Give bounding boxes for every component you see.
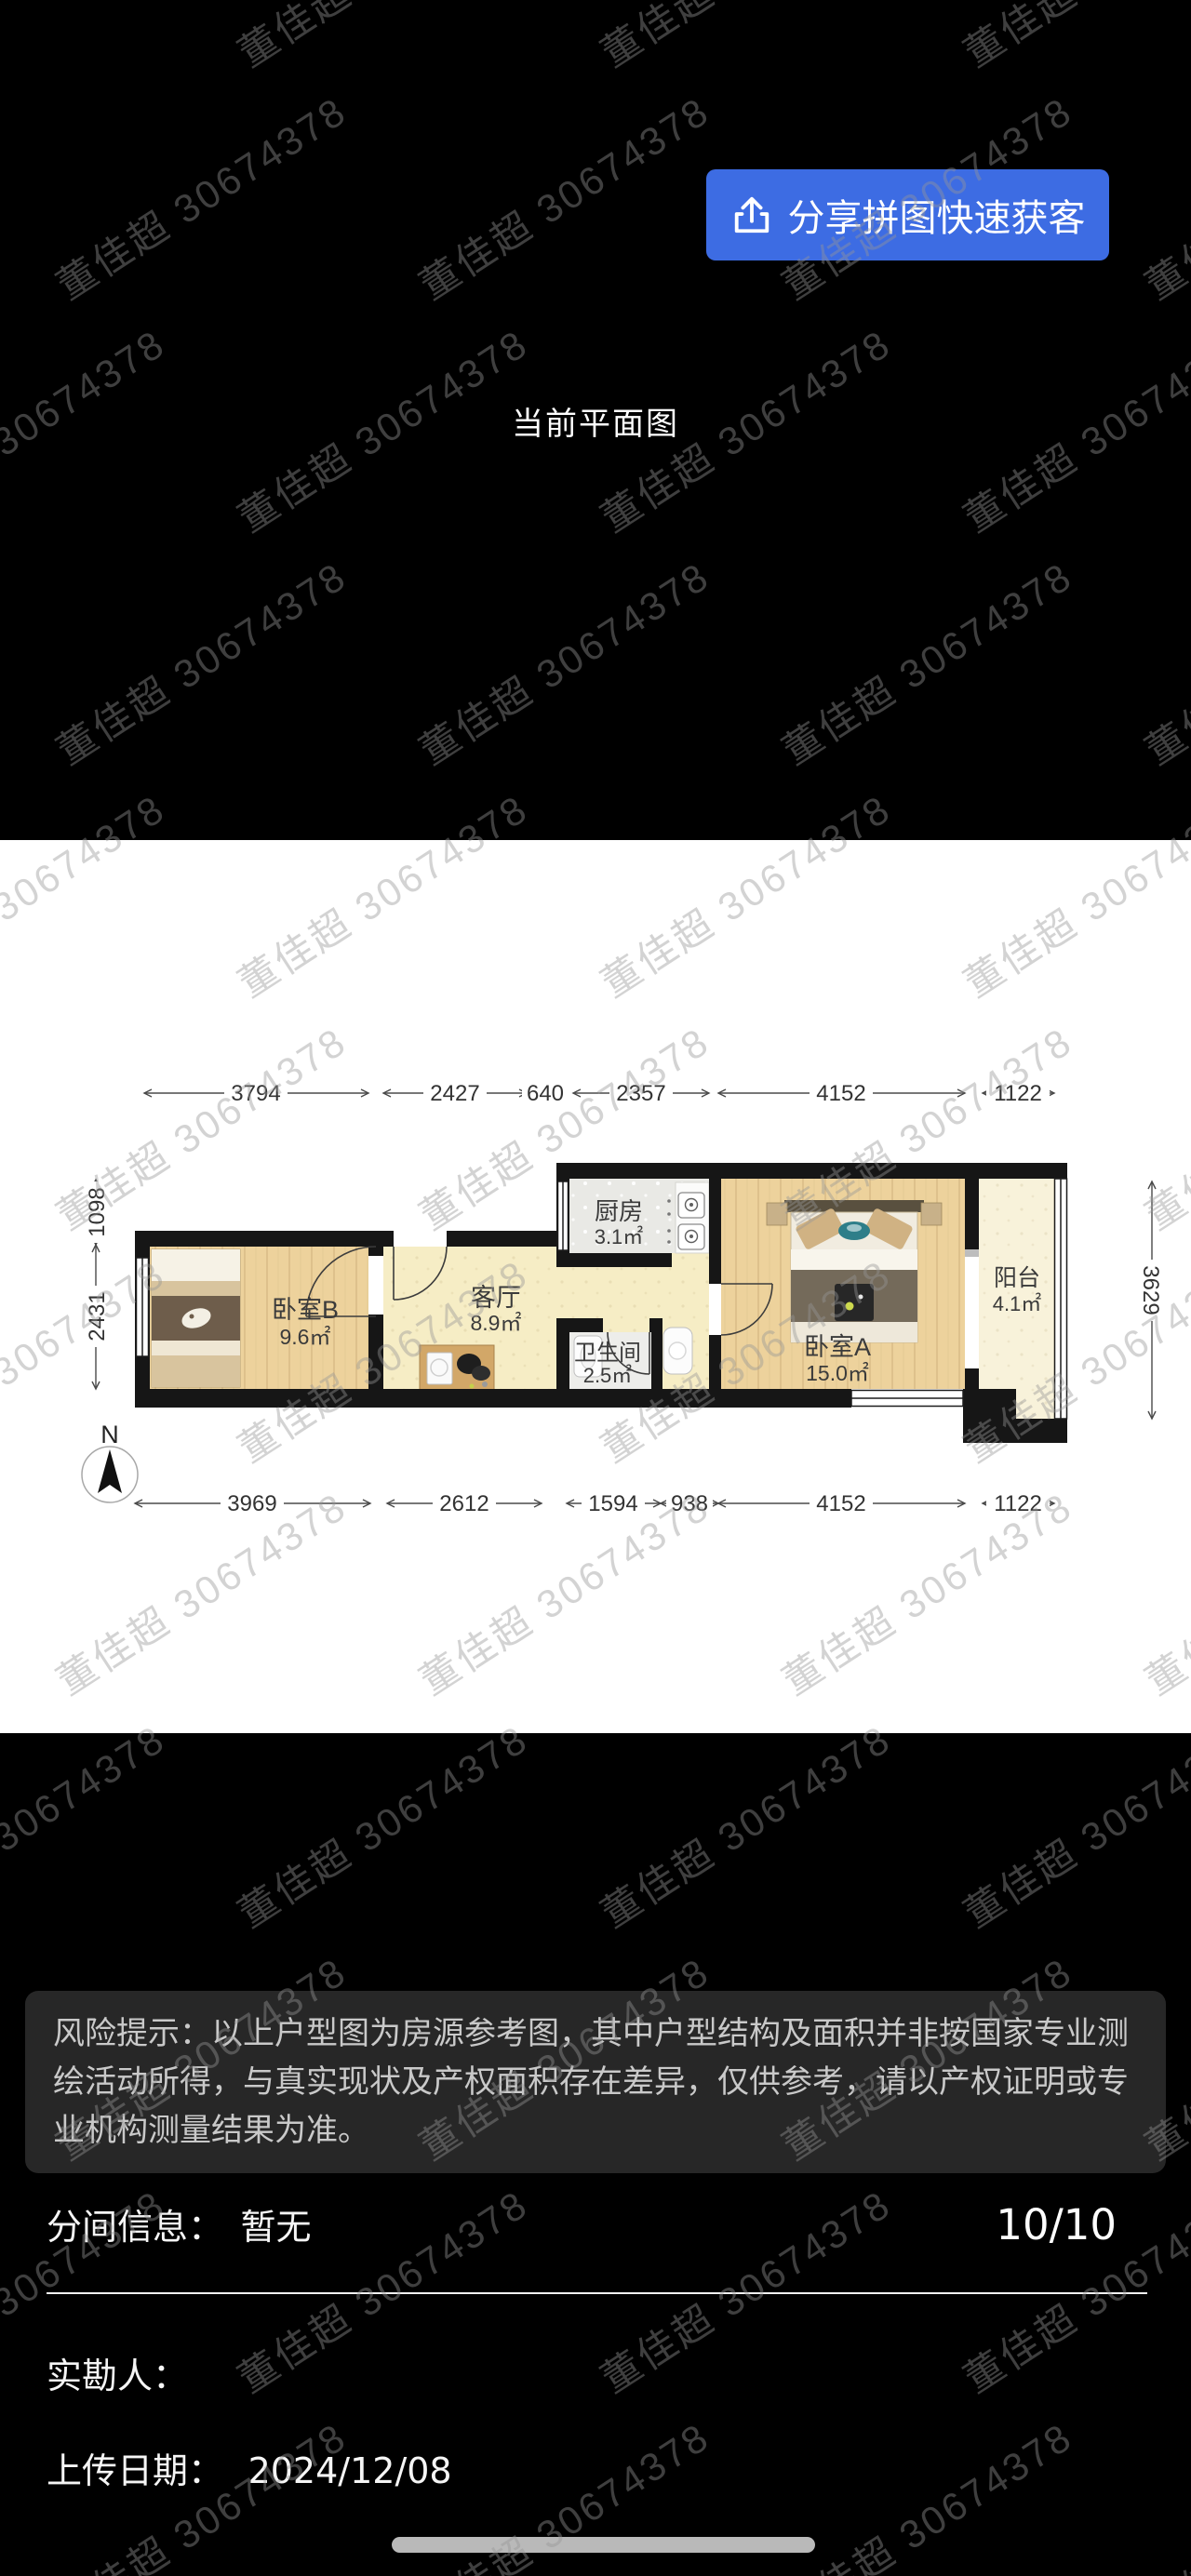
dim-bottom-3: 1594 — [588, 1491, 637, 1516]
partition-info-value: 暂无 — [240, 2209, 311, 2248]
bed-bedroom-b — [152, 1249, 240, 1387]
room-name-bathroom: 卫生间 — [574, 1341, 641, 1366]
bed-bedroom-a — [767, 1200, 942, 1342]
upload-date-label: 上传日期： — [47, 2452, 223, 2491]
tv-cabinet — [420, 1345, 494, 1395]
surveyor-row: 实勘人： — [47, 2347, 188, 2398]
share-button[interactable]: 分享拼图快速获客 — [706, 169, 1109, 260]
room-area-living: 8.9㎡ — [471, 1311, 522, 1335]
room-area-bedroom-b: 9.6㎡ — [280, 1325, 331, 1349]
dim-bottom-5: 4152 — [816, 1491, 865, 1516]
dim-bottom-2: 2612 — [439, 1491, 488, 1516]
north-indicator: N — [82, 1421, 138, 1502]
dim-top-2: 2427 — [430, 1081, 479, 1106]
partition-info: 分间信息： 暂无 — [47, 2198, 311, 2249]
dim-top-1: 3794 — [231, 1081, 280, 1106]
risk-notice-text: 风险提示：以上户型图为房源参考图，其中户型结构及面积并非按国家专业测绘活动所得，… — [53, 2016, 1129, 2148]
page-title: 当前平面图 — [0, 398, 1191, 444]
dim-top-5: 4152 — [816, 1081, 865, 1106]
room-area-bathroom: 2.5㎡ — [583, 1364, 633, 1387]
dim-top-4: 2357 — [616, 1081, 665, 1106]
dim-right-1: 3629 — [1138, 1265, 1163, 1315]
home-indicator-bar[interactable] — [392, 2537, 815, 2553]
share-icon — [730, 194, 773, 236]
partition-info-label: 分间信息： — [47, 2209, 223, 2248]
dim-left-1: 1098 — [85, 1187, 110, 1236]
floorplan-svg: 3794 2427 640 2357 4152 1122 3969 2612 1… — [0, 840, 1191, 1733]
dim-bottom-4: 938 — [671, 1491, 708, 1516]
wall-cap — [965, 1249, 979, 1257]
room-area-balcony: 4.1㎡ — [993, 1292, 1042, 1315]
dim-bottom-1: 3969 — [227, 1491, 276, 1516]
dim-top-3: 640 — [527, 1081, 564, 1106]
upload-date-row: 上传日期： 2024/12/08 — [47, 2442, 452, 2493]
info-section: 风险提示：以上户型图为房源参考图，其中户型结构及面积并非按国家专业测绘活动所得，… — [0, 1733, 1191, 2576]
room-name-bedroom-a: 卧室A — [804, 1333, 871, 1361]
room-area-kitchen: 3.1㎡ — [595, 1225, 644, 1248]
divider — [47, 2292, 1147, 2294]
surveyor-label: 实勘人： — [47, 2357, 188, 2396]
room-name-balcony: 阳台 — [994, 1265, 1040, 1291]
top-section: 分享拼图快速获客 当前平面图 — [0, 0, 1191, 840]
room-name-kitchen: 厨房 — [595, 1197, 643, 1225]
room-name-bedroom-b: 卧室B — [272, 1296, 339, 1324]
north-label: N — [100, 1421, 119, 1448]
floorplan-image[interactable]: 3794 2427 640 2357 4152 1122 3969 2612 1… — [0, 840, 1191, 1733]
upload-date-value: 2024/12/08 — [248, 2450, 452, 2491]
dim-top-6: 1122 — [994, 1081, 1042, 1106]
room-area-bedroom-a: 15.0㎡ — [806, 1361, 869, 1385]
page-indicator: 10/10 — [996, 2200, 1117, 2249]
partition-info-row: 分间信息： 暂无 10/10 — [47, 2198, 1117, 2249]
room-name-living: 客厅 — [471, 1284, 521, 1312]
dim-bottom-6: 1122 — [994, 1491, 1042, 1516]
dim-left-2: 2431 — [85, 1291, 110, 1341]
share-button-label: 分享拼图快速获客 — [788, 188, 1086, 242]
risk-notice: 风险提示：以上户型图为房源参考图，其中户型结构及面积并非按国家专业测绘活动所得，… — [25, 1991, 1166, 2173]
